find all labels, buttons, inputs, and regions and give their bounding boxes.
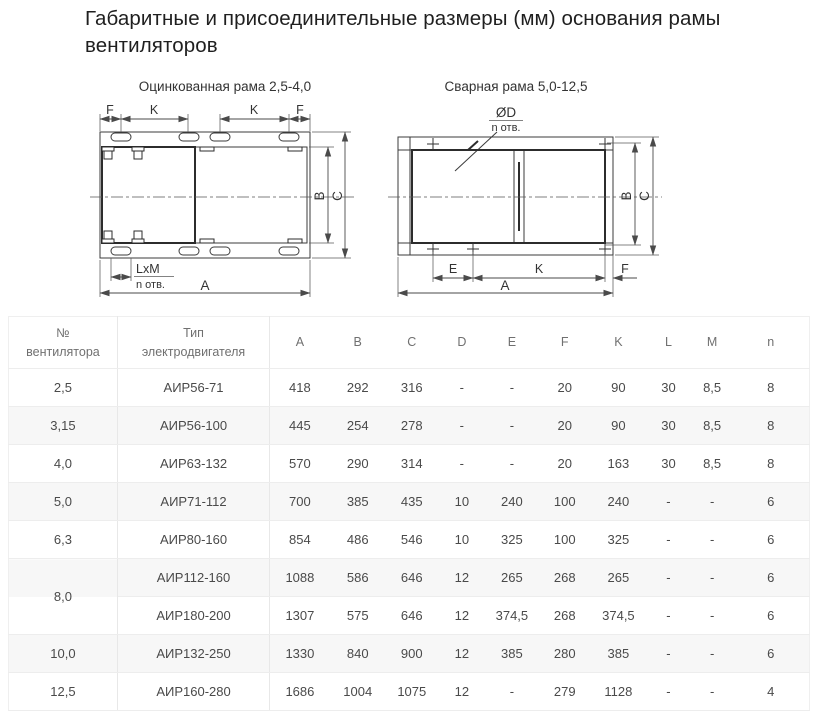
dimension-cell: 20 bbox=[538, 445, 592, 483]
dimension-cell: 20 bbox=[538, 369, 592, 407]
col-header-a: A bbox=[270, 317, 330, 369]
dimension-cell: 12 bbox=[438, 635, 486, 673]
motor-type-cell: АИР56-71 bbox=[117, 369, 269, 407]
dimension-cell: 1686 bbox=[270, 673, 330, 711]
dimension-cell: 163 bbox=[592, 445, 646, 483]
dimension-cell: 100 bbox=[538, 521, 592, 559]
dimension-cell: 6 bbox=[733, 483, 810, 521]
right-dim-a: A bbox=[500, 278, 509, 293]
fan-number-cell: 8,0 bbox=[9, 559, 118, 635]
dimension-cell: 12 bbox=[438, 559, 486, 597]
dimension-cell: 8,5 bbox=[692, 407, 733, 445]
motor-type-cell: АИР80-160 bbox=[117, 521, 269, 559]
dimension-cell: 12 bbox=[438, 597, 486, 635]
dimension-cell: 8 bbox=[733, 445, 810, 483]
col-header-motor-type: Тип электродвигателя bbox=[117, 317, 269, 369]
table-row: 12,5АИР160-28016861004107512-2791128--4 bbox=[9, 673, 810, 711]
right-dimension-lines bbox=[398, 137, 653, 293]
right-drawing-title: Сварная рама 5,0-12,5 bbox=[445, 79, 588, 94]
motor-type-cell: АИР56-100 bbox=[117, 407, 269, 445]
dimension-cell: - bbox=[645, 635, 691, 673]
dimension-cell: - bbox=[645, 673, 691, 711]
dimension-cell: - bbox=[645, 559, 691, 597]
dimensions-table-body: 2,5АИР56-71418292316--2090308,583,15АИР5… bbox=[9, 369, 810, 711]
dimension-cell: 586 bbox=[330, 559, 386, 597]
dimension-cell: 575 bbox=[330, 597, 386, 635]
fan-number-cell: 12,5 bbox=[9, 673, 118, 711]
col-header-f: F bbox=[538, 317, 592, 369]
dimension-cell: 8,5 bbox=[692, 369, 733, 407]
dimensions-table-container: № вентилятора Тип электродвигателя A B C… bbox=[8, 316, 810, 711]
left-dim-a: A bbox=[200, 278, 209, 293]
table-row: 4,0АИР63-132570290314--20163308,58 bbox=[9, 445, 810, 483]
left-drawing-title: Оцинкованная рама 2,5-4,0 bbox=[139, 79, 311, 94]
dimension-cell: 840 bbox=[330, 635, 386, 673]
table-row: АИР180-200130757564612374,5268374,5--6 bbox=[9, 597, 810, 635]
dimension-cell: 4 bbox=[733, 673, 810, 711]
dimension-cell: 30 bbox=[645, 369, 691, 407]
right-dim-c: C bbox=[637, 191, 652, 201]
dimension-cell: 435 bbox=[386, 483, 438, 521]
col-header-n: n bbox=[733, 317, 810, 369]
fan-number-cell: 5,0 bbox=[9, 483, 118, 521]
dimension-cell: 30 bbox=[645, 407, 691, 445]
dimension-cell: 279 bbox=[538, 673, 592, 711]
left-dim-f-right: F bbox=[296, 103, 304, 117]
dimension-cell: 280 bbox=[538, 635, 592, 673]
fan-number-cell: 10,0 bbox=[9, 635, 118, 673]
page-title: Габаритные и присоединительные размеры (… bbox=[85, 6, 725, 59]
fan-number-cell: 3,15 bbox=[9, 407, 118, 445]
dimension-cell: 700 bbox=[270, 483, 330, 521]
dimension-cell: 1075 bbox=[386, 673, 438, 711]
dimension-cell: 10 bbox=[438, 521, 486, 559]
motor-type-cell: АИР71-112 bbox=[117, 483, 269, 521]
dimension-cell: 374,5 bbox=[486, 597, 538, 635]
left-dim-k-left: K bbox=[150, 103, 159, 117]
dimension-cell: 570 bbox=[270, 445, 330, 483]
dimension-cell: 646 bbox=[386, 559, 438, 597]
table-row: 2,5АИР56-71418292316--2090308,58 bbox=[9, 369, 810, 407]
dimension-cell: 12 bbox=[438, 673, 486, 711]
dimension-cell: - bbox=[486, 445, 538, 483]
dimension-cell: 290 bbox=[330, 445, 386, 483]
left-dim-b: B bbox=[312, 191, 327, 200]
table-row: 10,0АИР132-250133084090012385280385--6 bbox=[9, 635, 810, 673]
dimension-cell: 385 bbox=[330, 483, 386, 521]
table-row: 8,0АИР112-160108858664612265268265--6 bbox=[9, 559, 810, 597]
dimension-cell: 254 bbox=[330, 407, 386, 445]
left-drawing: Оцинкованная рама 2,5-4,0 bbox=[90, 79, 355, 297]
motor-type-cell: АИР112-160 bbox=[117, 559, 269, 597]
dimension-cell: 8 bbox=[733, 369, 810, 407]
dimension-cell: - bbox=[486, 673, 538, 711]
col-header-d: D bbox=[438, 317, 486, 369]
dimension-cell: 8 bbox=[733, 407, 810, 445]
dimension-cell: 6 bbox=[733, 635, 810, 673]
dimension-cell: 546 bbox=[386, 521, 438, 559]
dimension-cell: 20 bbox=[538, 407, 592, 445]
dimension-cell: 385 bbox=[592, 635, 646, 673]
dimension-cell: 100 bbox=[538, 483, 592, 521]
dimension-cell: - bbox=[645, 597, 691, 635]
fan-number-cell: 2,5 bbox=[9, 369, 118, 407]
dimension-cell: 10 bbox=[438, 483, 486, 521]
dimension-cell: 325 bbox=[486, 521, 538, 559]
dimension-cell: - bbox=[692, 559, 733, 597]
dimension-cell: 6 bbox=[733, 559, 810, 597]
dimension-cell: 418 bbox=[270, 369, 330, 407]
dimension-cell: 1307 bbox=[270, 597, 330, 635]
dimension-cell: 6 bbox=[733, 597, 810, 635]
dimension-cell: 268 bbox=[538, 597, 592, 635]
col-header-l: L bbox=[645, 317, 691, 369]
dimension-cell: - bbox=[438, 369, 486, 407]
dimension-cell: - bbox=[692, 673, 733, 711]
col-header-e: E bbox=[486, 317, 538, 369]
col-header-fan-number: № вентилятора bbox=[9, 317, 118, 369]
col-header-k: K bbox=[592, 317, 646, 369]
right-extension-lines bbox=[398, 121, 659, 298]
dimension-cell: 8,5 bbox=[692, 445, 733, 483]
motor-type-cell: АИР160-280 bbox=[117, 673, 269, 711]
right-hole-diameter-label: ØD bbox=[496, 105, 517, 120]
dimension-cell: 240 bbox=[486, 483, 538, 521]
dimension-cell: - bbox=[692, 521, 733, 559]
dimension-cell: - bbox=[692, 635, 733, 673]
dimension-cell: 30 bbox=[645, 445, 691, 483]
table-row: 3,15АИР56-100445254278--2090308,58 bbox=[9, 407, 810, 445]
right-dim-e: E bbox=[449, 262, 457, 276]
dimension-cell: 646 bbox=[386, 597, 438, 635]
motor-type-cell: АИР132-250 bbox=[117, 635, 269, 673]
dimension-cell: 374,5 bbox=[592, 597, 646, 635]
col-header-m: M bbox=[692, 317, 733, 369]
dimension-cell: 445 bbox=[270, 407, 330, 445]
dimension-cell: 1330 bbox=[270, 635, 330, 673]
dimension-cell: - bbox=[438, 445, 486, 483]
dimension-cell: 6 bbox=[733, 521, 810, 559]
dimension-cell: - bbox=[438, 407, 486, 445]
right-dim-b: B bbox=[619, 191, 634, 200]
dimension-cell: 854 bbox=[270, 521, 330, 559]
table-row: 6,3АИР80-16085448654610325100325--6 bbox=[9, 521, 810, 559]
right-dim-f: F bbox=[621, 262, 629, 276]
right-holes-count: n отв. bbox=[492, 122, 521, 134]
dimension-cell: - bbox=[645, 483, 691, 521]
right-drawing: Сварная рама 5,0-12,5 bbox=[388, 79, 662, 297]
table-row: 5,0АИР71-11270038543510240100240--6 bbox=[9, 483, 810, 521]
dimensions-table: № вентилятора Тип электродвигателя A B C… bbox=[8, 316, 810, 711]
dimension-cell: 486 bbox=[330, 521, 386, 559]
dimension-cell: 268 bbox=[538, 559, 592, 597]
right-dim-k: K bbox=[535, 262, 544, 276]
dimension-cell: - bbox=[645, 521, 691, 559]
dimension-cell: 314 bbox=[386, 445, 438, 483]
dimension-cell: 240 bbox=[592, 483, 646, 521]
motor-type-cell: АИР180-200 bbox=[117, 597, 269, 635]
page: { "page_title": "Габаритные и присоедини… bbox=[0, 0, 818, 702]
dimension-cell: 90 bbox=[592, 369, 646, 407]
fan-number-cell: 4,0 bbox=[9, 445, 118, 483]
fan-number-cell: 6,3 bbox=[9, 521, 118, 559]
left-frame-bolts bbox=[102, 147, 302, 243]
dimension-cell: - bbox=[486, 407, 538, 445]
dimension-cell: 1004 bbox=[330, 673, 386, 711]
dimension-cell: 1128 bbox=[592, 673, 646, 711]
dimension-cell: 265 bbox=[592, 559, 646, 597]
dimension-cell: - bbox=[486, 369, 538, 407]
left-dim-f-left: F bbox=[106, 103, 114, 117]
motor-type-cell: АИР63-132 bbox=[117, 445, 269, 483]
col-header-c: C bbox=[386, 317, 438, 369]
table-header-row: № вентилятора Тип электродвигателя A B C… bbox=[9, 317, 810, 369]
left-holes-count: n отв. bbox=[136, 279, 165, 291]
col-header-b: B bbox=[330, 317, 386, 369]
left-dim-lxm: LxM bbox=[136, 262, 160, 276]
dimension-cell: 316 bbox=[386, 369, 438, 407]
dimension-cell: 1088 bbox=[270, 559, 330, 597]
dimension-cell: 325 bbox=[592, 521, 646, 559]
left-dim-k-right: K bbox=[250, 103, 259, 117]
dimension-cell: 90 bbox=[592, 407, 646, 445]
dimension-cell: 278 bbox=[386, 407, 438, 445]
right-frame-bold bbox=[412, 141, 605, 243]
dimension-cell: 385 bbox=[486, 635, 538, 673]
dimension-cell: 900 bbox=[386, 635, 438, 673]
dimension-cell: 265 bbox=[486, 559, 538, 597]
technical-drawings: Оцинкованная рама 2,5-4,0 bbox=[0, 72, 818, 312]
dimension-cell: - bbox=[692, 597, 733, 635]
dimension-cell: - bbox=[692, 483, 733, 521]
left-frame-bold-section bbox=[102, 147, 195, 243]
left-dim-c: C bbox=[330, 191, 345, 201]
dimension-cell: 292 bbox=[330, 369, 386, 407]
